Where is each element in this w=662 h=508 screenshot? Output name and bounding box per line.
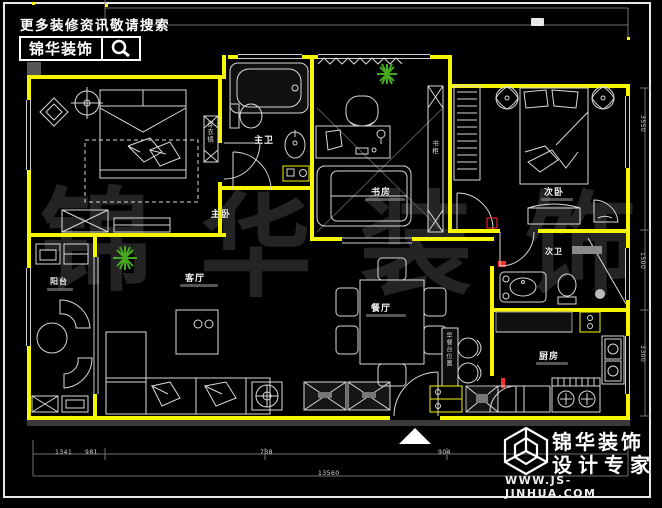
living-sofa <box>106 332 270 414</box>
kitchen-sink <box>602 336 624 384</box>
bench-master <box>114 218 170 232</box>
plant-stand-left <box>496 87 518 109</box>
bar-lower-cabinet <box>430 386 462 412</box>
kitchen-stove <box>552 378 600 412</box>
fixture-label-bar: 早餐台位置 <box>445 332 451 384</box>
second-bedroom-chair <box>594 200 618 222</box>
plant-stand-right <box>592 87 614 109</box>
plant-living <box>113 246 137 270</box>
desk <box>316 126 390 158</box>
room-area-text <box>536 362 568 365</box>
balcony-table <box>37 323 67 353</box>
room-label-kitchen: 厨房 <box>539 349 559 362</box>
living-coffee-table <box>176 310 218 354</box>
balcony-chair-2 <box>64 358 92 388</box>
room-label-second-bath: 次卫 <box>545 246 563 257</box>
study-projection-lines <box>317 108 443 232</box>
bar-stools <box>458 338 481 383</box>
door-second-bedroom <box>457 193 493 229</box>
second-bedroom-dresser <box>528 204 580 224</box>
tv-cabinet-master <box>62 210 108 232</box>
search-logo-box[interactable]: 锦华装饰 <box>19 36 141 61</box>
plant-study <box>377 64 397 84</box>
kitchen-cabinets <box>498 386 550 412</box>
room-area-text <box>365 198 405 201</box>
study-daybed <box>317 166 411 226</box>
room-label-master-bath: 主卫 <box>254 133 274 146</box>
toilet-second-bath <box>558 274 576 304</box>
wardrobe-second-bedroom <box>454 86 480 180</box>
room-area-text <box>47 288 73 291</box>
room-label-second-bedroom: 次卧 <box>544 185 564 198</box>
ceiling-symbol <box>71 87 103 119</box>
fixture-label-mirror: 穿衣镜 <box>206 121 213 161</box>
entrance-door <box>394 372 438 416</box>
mini-watermark <box>531 18 544 26</box>
door-master-bath <box>233 152 271 190</box>
kitchen-hob-marker <box>580 312 600 332</box>
sink-master <box>285 130 305 158</box>
balcony-planters-top <box>36 244 88 264</box>
room-label-master-bedroom: 主卧 <box>211 207 231 220</box>
door-second-bath <box>500 232 534 266</box>
header-slogan: 更多装修资讯敬请搜索 <box>20 14 170 34</box>
balcony-chair-1 <box>60 300 90 328</box>
room-label-study: 书房 <box>371 185 391 198</box>
room-label-balcony: 阳台 <box>50 276 68 287</box>
room-label-dining: 餐厅 <box>371 301 391 314</box>
dining-table-set <box>336 258 446 386</box>
washer-position <box>283 166 309 181</box>
bedroom-rug <box>85 140 198 202</box>
tv-cabinet-living <box>304 382 390 410</box>
study-sliding-door <box>342 238 412 243</box>
study-radiator <box>318 58 402 64</box>
fixture-label-bookcase: 书柜 <box>431 140 438 196</box>
corner-chair <box>40 98 68 126</box>
door-master-bedroom <box>224 143 260 179</box>
second-bed <box>520 88 588 184</box>
floor-plan-sheet: 锦 华 装 饰 1341 981 738 904 13560 3550 1500… <box>0 0 662 508</box>
floor-speaker <box>252 382 282 410</box>
room-area-text <box>366 314 406 317</box>
room-area-text <box>180 284 218 287</box>
footer-url[interactable]: WWW.JS-JINHUA.COM <box>505 474 662 500</box>
room-label-living: 客厅 <box>185 271 205 284</box>
brand-name: 锦华装饰 <box>21 38 101 59</box>
kitchen-counter <box>496 312 572 332</box>
search-icon[interactable] <box>101 38 139 59</box>
balcony-sliding-door <box>94 257 98 394</box>
shower-area <box>572 238 626 304</box>
master-bed <box>100 90 186 178</box>
desk-chair <box>346 96 378 126</box>
balcony-benches-bottom <box>32 396 88 412</box>
vanity-second-bath <box>500 272 546 302</box>
entrance-marker <box>399 428 431 444</box>
bathtub <box>230 63 308 113</box>
room-area-text <box>541 198 573 201</box>
